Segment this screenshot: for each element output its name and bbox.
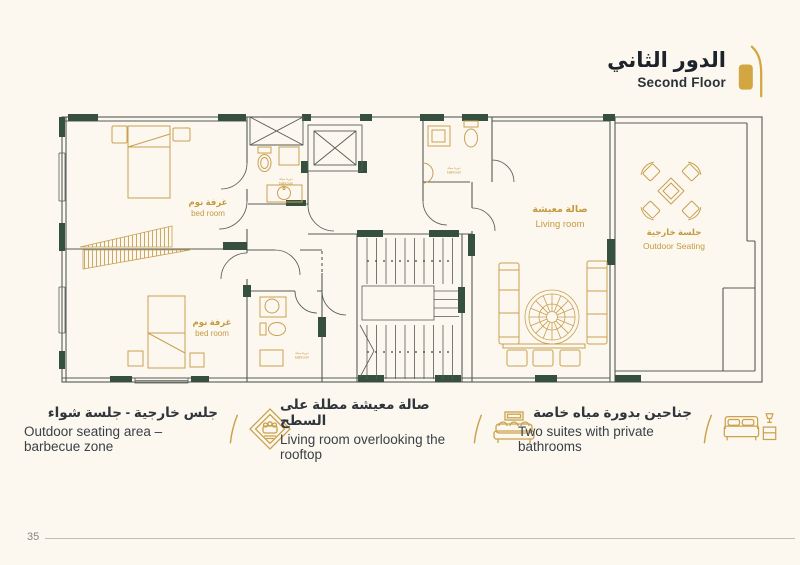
- bed-bottom: [128, 296, 204, 368]
- legend-text: جلس خارجية - جلسة شواء Outdoor seating a…: [24, 405, 218, 454]
- bed-icon: [722, 409, 778, 449]
- outdoor-label-ar: جلسة خارجية: [647, 227, 702, 238]
- bath1-label-ar: دورة مياه: [279, 177, 293, 181]
- wardrobe: [80, 226, 190, 269]
- plan-wall-blocks: [59, 114, 641, 382]
- legend-label-arabic: جناحين بدورة مياه خاصة: [533, 405, 692, 421]
- bath1-label-en: bathroom: [279, 182, 293, 186]
- legend-item-two-suites: جناحين بدورة مياه خاصة Two suites with p…: [518, 400, 778, 458]
- bed-top: [112, 126, 190, 198]
- bath2-label-ar: دورة مياه: [295, 351, 309, 355]
- brochure-page: الدور الثاني Second Floor: [0, 0, 800, 565]
- header-titles: الدور الثاني Second Floor: [607, 42, 726, 90]
- bedroom-top-label-en: bed room: [191, 209, 225, 218]
- legend-label-english: Living room overlooking the rooftop: [280, 432, 462, 462]
- outdoor-label-en: Outdoor Seating: [643, 241, 705, 251]
- living-room-label-ar: صالة معيشة: [532, 204, 587, 215]
- legend-text: جناحين بدورة مياه خاصة Two suites with p…: [518, 405, 692, 454]
- legend-label-english: Outdoor seating area – barbecue zone: [24, 424, 218, 454]
- legend-item-living-rooftop: صالة معيشة مطلة على السطح Living room ov…: [280, 400, 536, 458]
- skylight-shaft: [250, 117, 303, 145]
- page-number: 35: [27, 531, 39, 543]
- page-header: الدور الثاني Second Floor: [607, 42, 764, 100]
- living-room-label-en: Living room: [535, 219, 584, 230]
- bedroom-bottom-label-ar: غرفة نوم: [193, 317, 232, 328]
- page-title-arabic: الدور الثاني: [607, 49, 726, 72]
- bedroom-top-label-ar: غرفة نوم: [189, 197, 228, 208]
- outdoor-furniture: [639, 160, 703, 222]
- living-room-furniture: [499, 261, 607, 366]
- page-title-english: Second Floor: [637, 75, 726, 90]
- door-icon: [736, 42, 764, 100]
- bath2-label-en: bathroom: [295, 356, 309, 360]
- round-rug: [525, 290, 579, 344]
- bath3-label-en: bathroom: [447, 171, 461, 175]
- bathroom-1-fixtures: [258, 147, 302, 202]
- bath3-label-ar: دورة مياه: [447, 166, 461, 170]
- bedroom-bottom-label-en: bed room: [195, 329, 229, 338]
- footer-divider-line: [45, 538, 795, 539]
- legend-label-arabic: جلس خارجية - جلسة شواء: [48, 405, 218, 421]
- floor-plan-drawing: غرفة نوم bed room غرفة نوم bed room صالة…: [55, 101, 765, 393]
- elevator: [308, 125, 362, 171]
- legend-label-english: Two suites with private bathrooms: [518, 424, 692, 454]
- legend-text: صالة معيشة مطلة على السطح Living room ov…: [280, 397, 462, 462]
- legend-item-outdoor-bbq: جلس خارجية - جلسة شواء Outdoor seating a…: [24, 400, 292, 458]
- legend-label-arabic: صالة معيشة مطلة على السطح: [280, 397, 462, 429]
- staircase: [360, 238, 459, 379]
- bathroom-2-fixtures: [260, 297, 286, 366]
- slash-separator-icon: [227, 412, 239, 446]
- slash-separator-icon: [701, 412, 713, 446]
- slash-separator-icon: [471, 412, 483, 446]
